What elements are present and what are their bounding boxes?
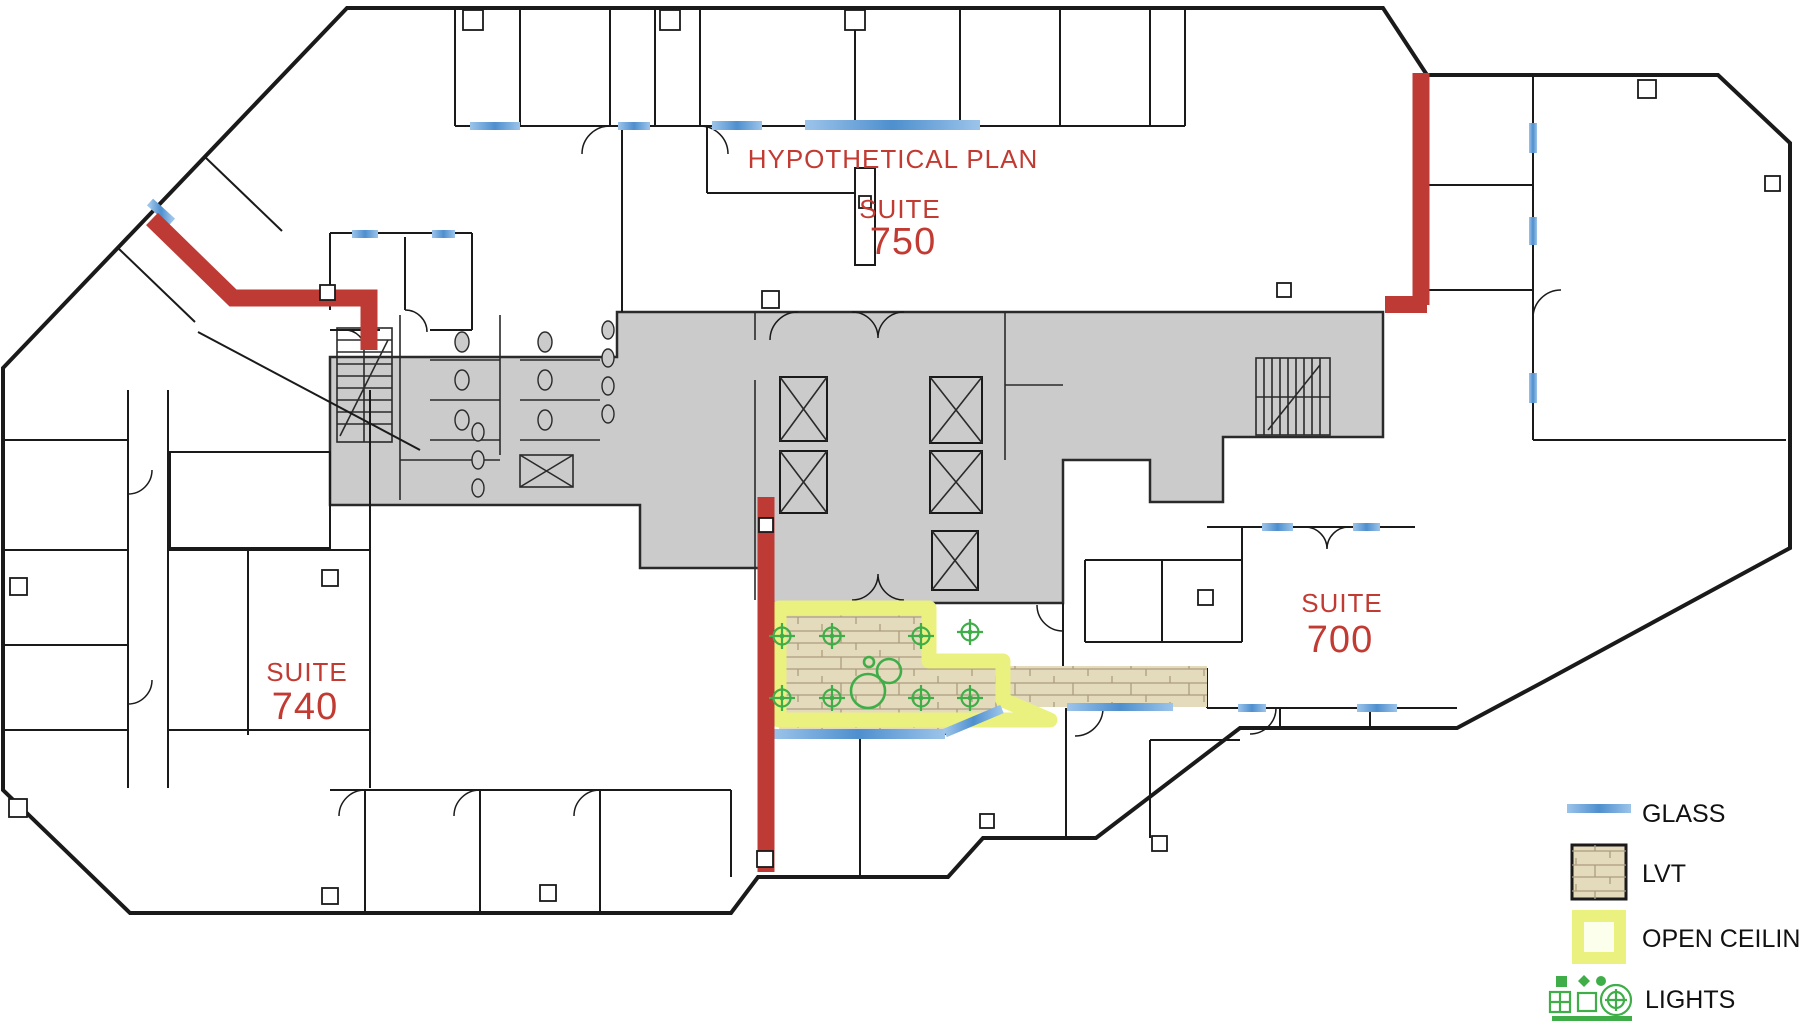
legend: GLASS LVT OPEN CEILING LIGH [1550, 800, 1800, 1021]
suite-700-number: 700 [1307, 619, 1373, 661]
legend-item-lvt: LVT [1572, 845, 1686, 899]
lvt-swatch-pattern [1572, 845, 1626, 899]
legend-lvt-label: LVT [1642, 860, 1686, 888]
suite-740-word: SUITE [266, 657, 348, 687]
floor-plan-page: HYPOTHETICAL PLAN SUITE 750 SUITE 740 SU… [0, 0, 1800, 1022]
legend-open-ceiling-label: OPEN CEILING [1642, 925, 1800, 953]
suite-750-label: SUITE 750 [859, 194, 941, 263]
suite-700-label: SUITE 700 [1301, 588, 1383, 661]
legend-item-glass: GLASS [1567, 800, 1725, 828]
legend-item-open-ceiling: OPEN CEILING [1578, 916, 1800, 958]
legend-lights-label: LIGHTS [1645, 986, 1735, 1014]
lights-swatch-icon [1550, 975, 1632, 1021]
suite-740-label: SUITE 740 [266, 657, 348, 728]
legend-glass-label: GLASS [1642, 800, 1725, 828]
open-ceiling-swatch-icon [1578, 916, 1620, 958]
plan-title: HYPOTHETICAL PLAN [748, 144, 1039, 174]
suite-750-word: SUITE [859, 194, 941, 224]
floor-plan-drawing: HYPOTHETICAL PLAN SUITE 750 SUITE 740 SU… [0, 0, 1800, 1022]
glass-swatch-icon [1567, 804, 1631, 813]
suite-750-number: 750 [870, 221, 936, 263]
suite-740-number: 740 [272, 686, 338, 728]
legend-item-lights: LIGHTS [1550, 975, 1735, 1021]
suite-700-word: SUITE [1301, 588, 1383, 618]
